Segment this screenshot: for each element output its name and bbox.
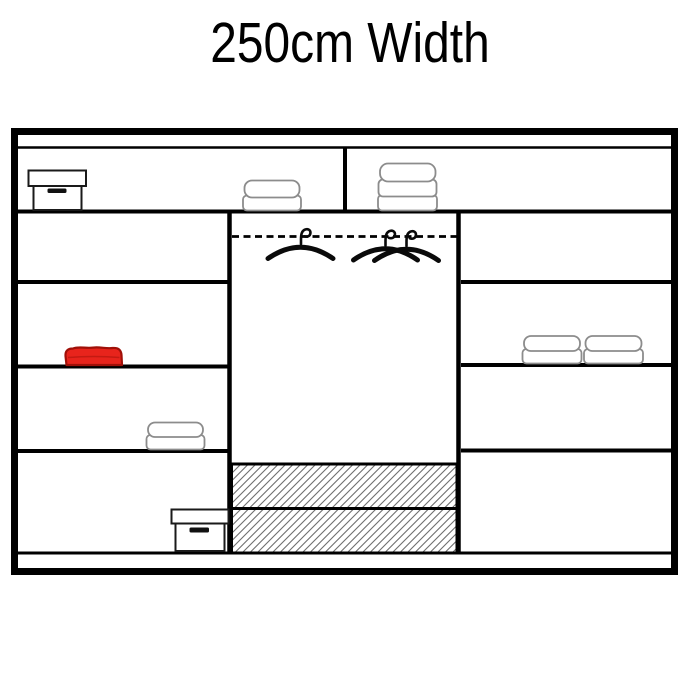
box-handle-slot <box>190 528 210 533</box>
storage-box-icon <box>29 171 87 211</box>
hatched-drawer-bottom <box>232 509 458 554</box>
towel-layer <box>586 336 642 351</box>
folded-towel-stack-2-icon <box>523 336 582 364</box>
red-folded-towel-icon <box>65 347 122 365</box>
storage-box-icon <box>172 510 229 552</box>
hatched-drawer-top <box>232 464 458 509</box>
box-handle-slot <box>48 189 67 194</box>
folded-towel-stack-3-icon <box>378 164 437 211</box>
towel-layer <box>380 164 436 182</box>
box-lid <box>29 171 87 187</box>
wardrobe-diagram <box>0 0 700 700</box>
folded-towel-stack-2-icon <box>584 336 643 364</box>
box-lid <box>172 510 229 524</box>
folded-towel-stack-2-icon <box>147 423 205 450</box>
towel-layer <box>524 336 580 351</box>
towel-layer <box>245 181 300 198</box>
folded-towel-stack-2-icon <box>243 181 301 211</box>
towel-layer <box>148 423 203 438</box>
